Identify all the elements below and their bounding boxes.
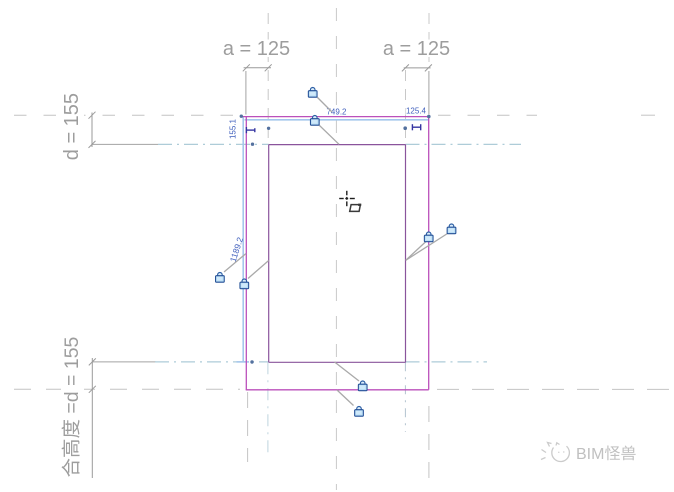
svg-text:BIM: BIM [576,446,604,463]
svg-text:155.1: 155.1 [228,118,237,139]
svg-text:a = 125: a = 125 [223,38,290,60]
svg-text:749.2: 749.2 [326,107,347,116]
svg-text:125.4: 125.4 [406,107,427,116]
svg-text:d = 155: d = 155 [61,93,83,160]
svg-text:=d = 155: =d = 155 [61,336,83,413]
svg-text:a = 125: a = 125 [383,38,450,60]
